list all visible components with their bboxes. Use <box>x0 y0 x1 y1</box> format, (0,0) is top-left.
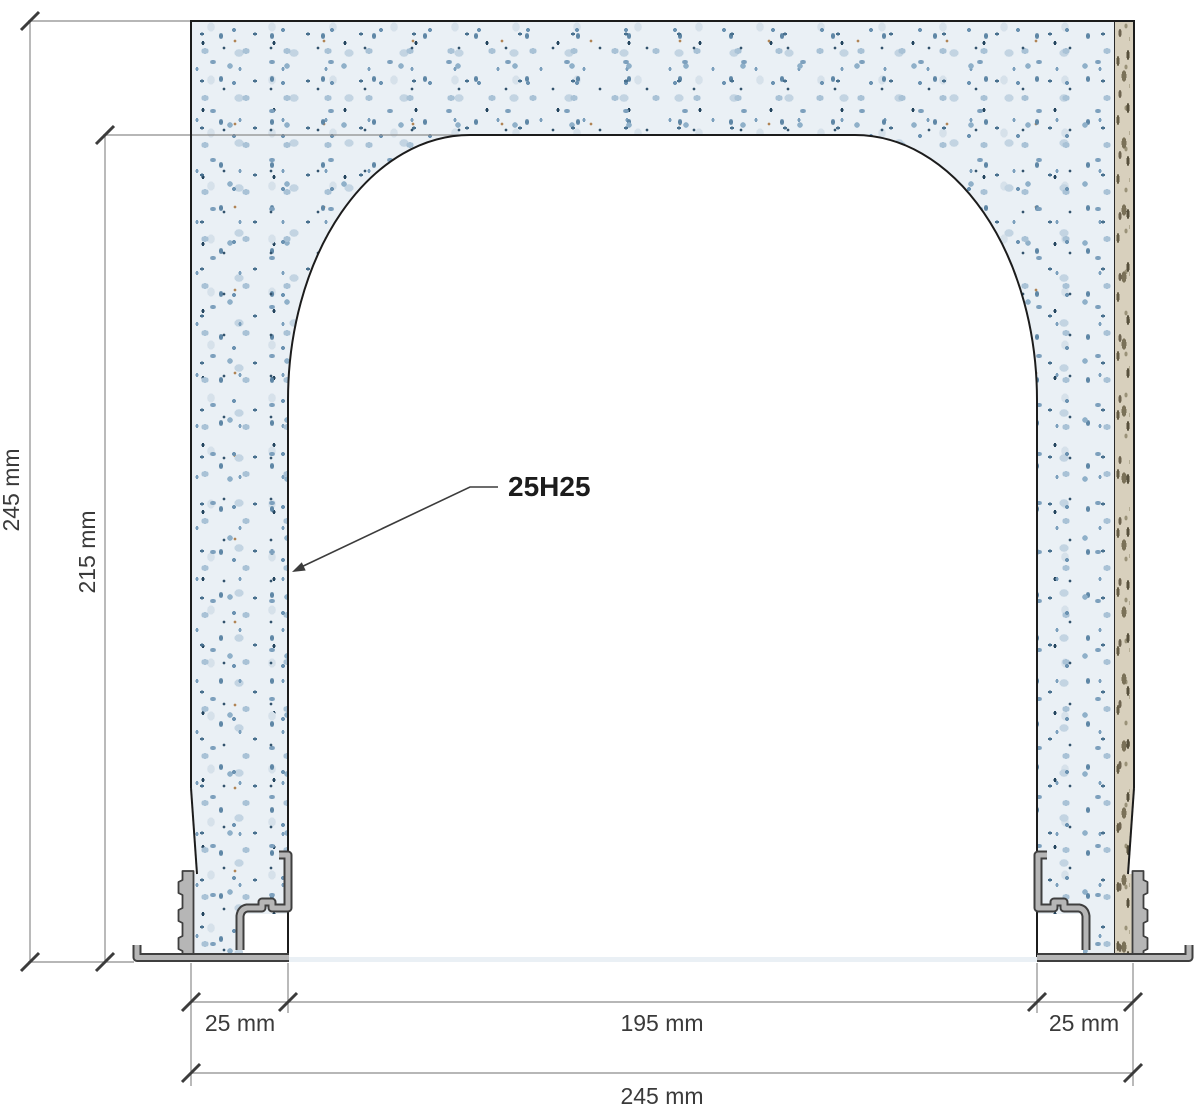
right-foot-notch <box>1038 914 1083 955</box>
dim-total-width-label: 245 mm <box>592 1083 732 1109</box>
dim-total-height-label: 245 mm <box>0 430 24 550</box>
technical-drawing-arch-section: 245 mm 215 mm 25 mm 195 mm 25 mm 245 mm … <box>0 0 1201 1119</box>
dim-left-jamb-label: 25 mm <box>180 1010 300 1036</box>
arch-opening-fill <box>288 135 1037 957</box>
dim-right-jamb-label: 25 mm <box>1024 1010 1144 1036</box>
part-label-25h25: 25H25 <box>508 472 591 502</box>
dim-opening-width-label: 195 mm <box>592 1010 732 1036</box>
left-foot-notch <box>243 914 288 955</box>
dim-opening-height-label: 215 mm <box>74 492 100 612</box>
drawing-linework <box>0 0 1201 1119</box>
